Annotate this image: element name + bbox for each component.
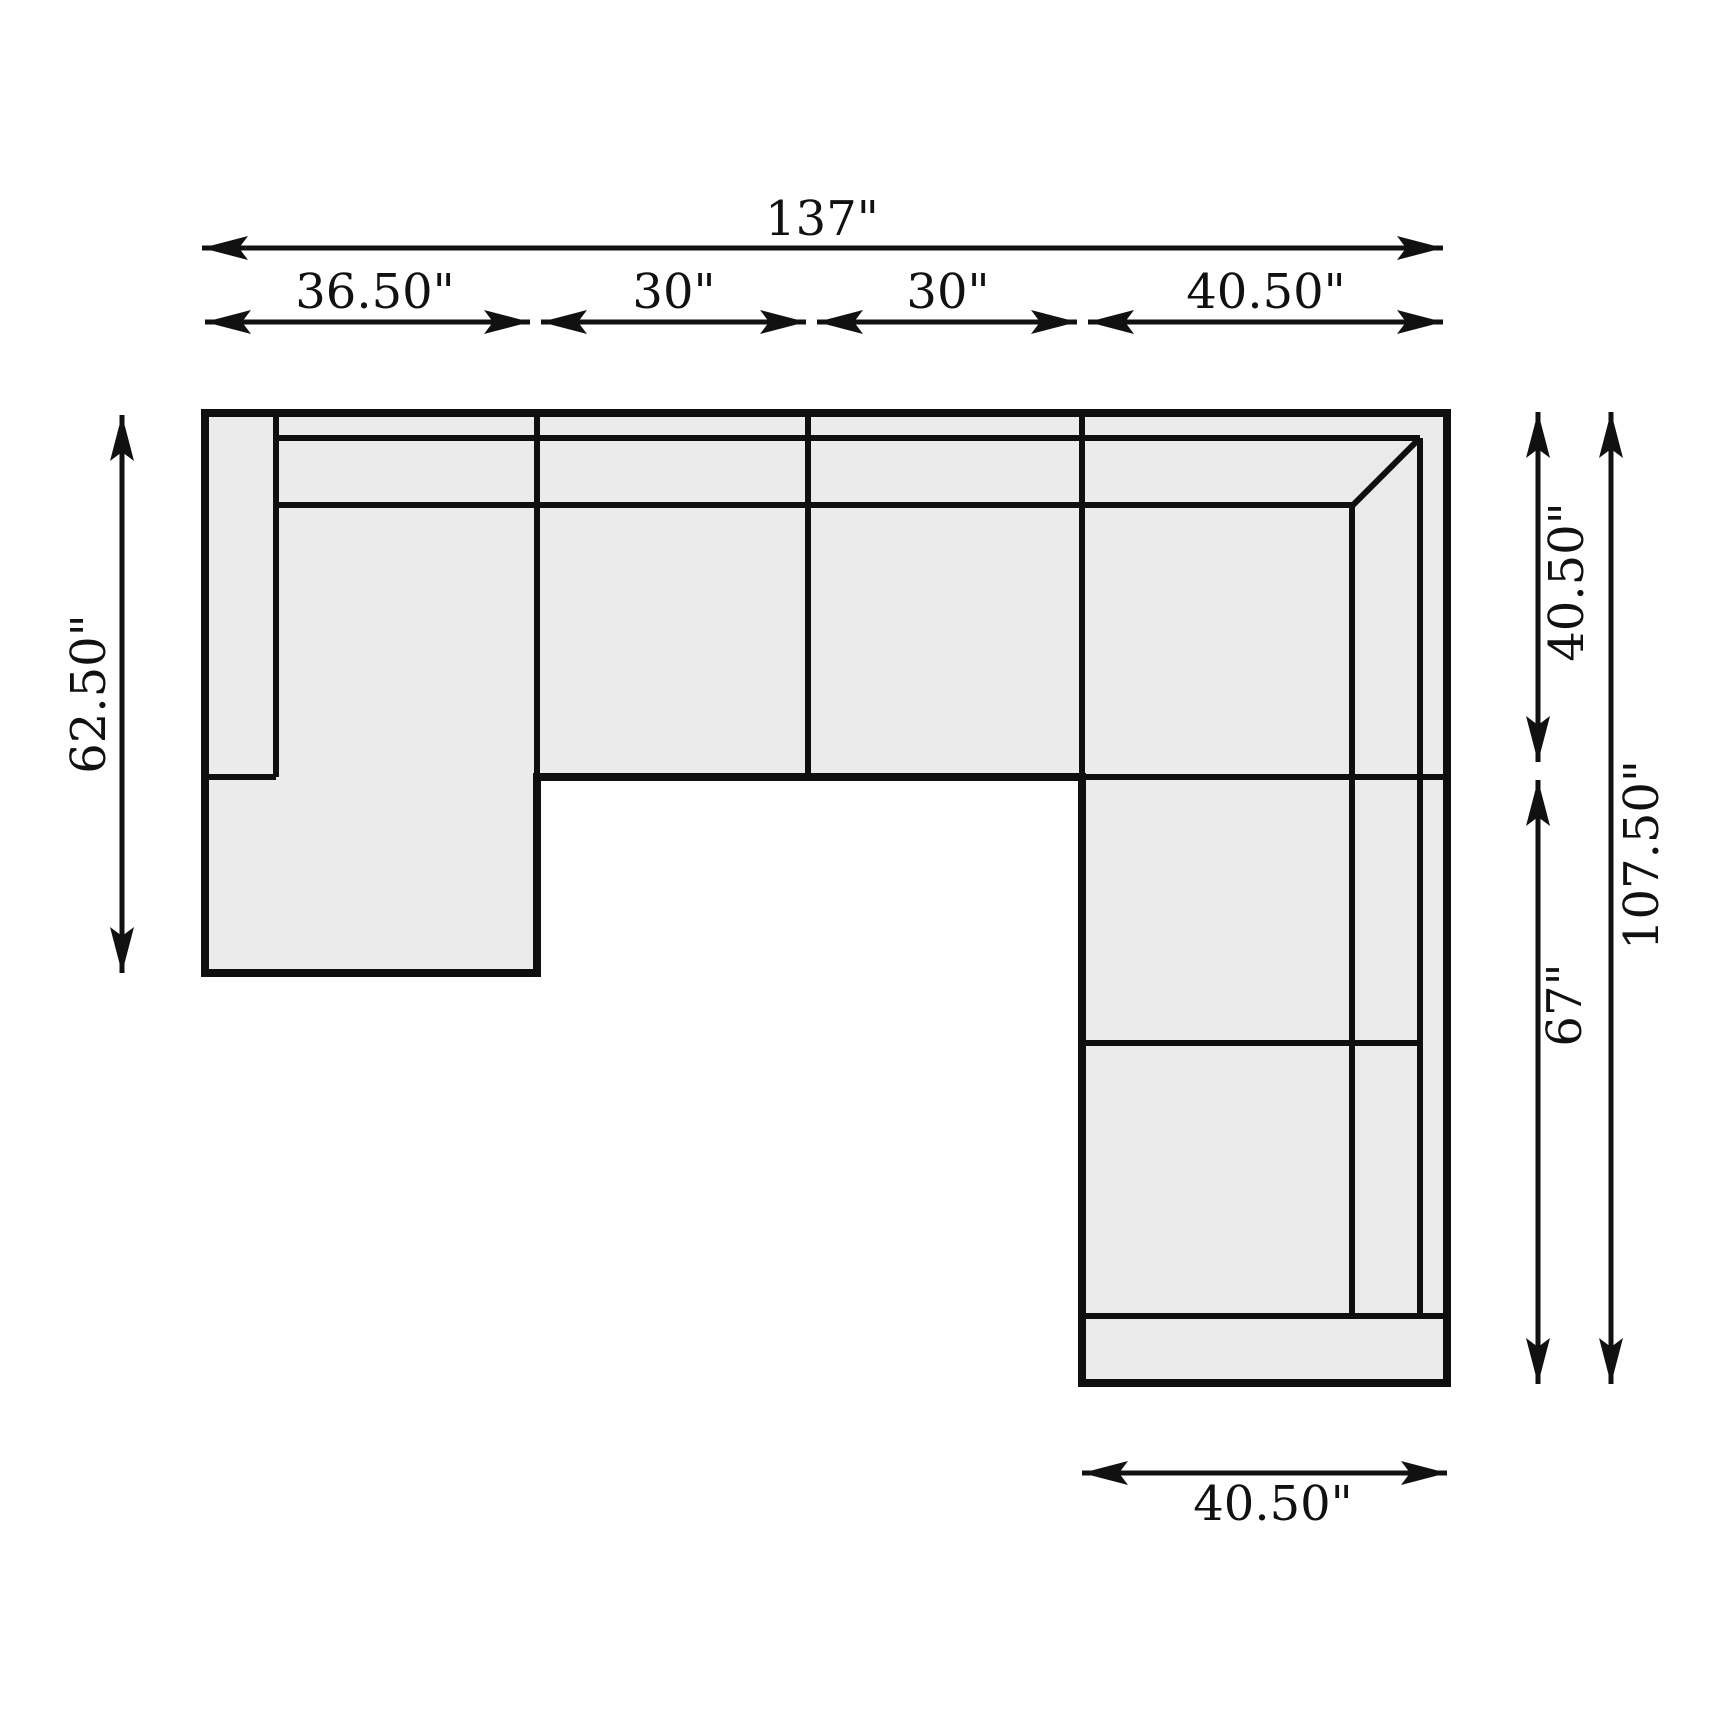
- bottom-width-label: 40.50": [1193, 1476, 1353, 1532]
- diagram-canvas: 137" 36.50" 30" 30" 40.50" 62.50" 40.50"…: [0, 0, 1726, 1726]
- segment-1-label: 36.50": [295, 264, 455, 320]
- segment-3-label: 30": [906, 264, 989, 320]
- left-depth-label: 62.50": [61, 614, 117, 774]
- sofa-outline: [205, 413, 1447, 1383]
- right-lower-depth-label: 67": [1537, 963, 1593, 1046]
- sofa-body: [205, 413, 1447, 1383]
- right-upper-depth-label: 40.50": [1539, 502, 1595, 662]
- segment-4-label: 40.50": [1186, 264, 1346, 320]
- overall-width-label: 137": [765, 191, 879, 247]
- segment-2-label: 30": [632, 264, 715, 320]
- sofa-dimension-diagram: 137" 36.50" 30" 30" 40.50" 62.50" 40.50"…: [0, 0, 1726, 1726]
- right-total-depth-label: 107.50": [1614, 760, 1670, 950]
